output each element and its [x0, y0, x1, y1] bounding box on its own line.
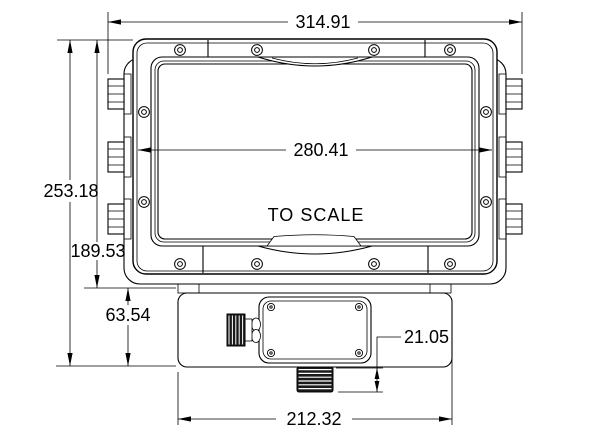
junction-box	[259, 297, 371, 363]
conduit-fitting	[297, 367, 333, 392]
rf-connector	[227, 314, 261, 346]
technical-drawing-page: TO SCALE 314.91 280	[0, 0, 600, 440]
dim-arrow	[375, 381, 380, 392]
dim-base-height: 63.54	[105, 288, 150, 366]
dim-overall-height-label: 253.18	[43, 181, 98, 201]
dim-arrow	[125, 353, 130, 366]
dim-arrow	[439, 416, 452, 421]
dim-arrow	[94, 275, 99, 288]
dim-arrow	[509, 19, 522, 24]
dim-arrow	[67, 40, 72, 53]
dim-enclosure-height-label: 189.53	[70, 241, 125, 261]
enclosure-technical-drawing: TO SCALE 314.91 280	[0, 0, 600, 440]
scale-note: TO SCALE	[268, 205, 365, 225]
dim-base-height-label: 63.54	[105, 305, 150, 325]
dim-bezel-width-label: 280.41	[293, 140, 348, 160]
mounting-blocks-left	[108, 79, 124, 234]
dim-base-width-label: 212.32	[286, 409, 341, 429]
dim-arrow	[108, 19, 121, 24]
dim-arrow	[178, 416, 191, 421]
dim-overall-width-label: 314.91	[295, 12, 350, 32]
dim-arrow	[375, 368, 380, 379]
dim-conduit-height-label: 21.05	[404, 327, 449, 347]
mounting-blocks-right	[506, 79, 522, 234]
dim-overall-height: 253.18	[43, 40, 98, 366]
dim-arrow	[125, 288, 130, 301]
dim-arrow	[94, 40, 99, 53]
dim-arrow	[67, 353, 72, 366]
